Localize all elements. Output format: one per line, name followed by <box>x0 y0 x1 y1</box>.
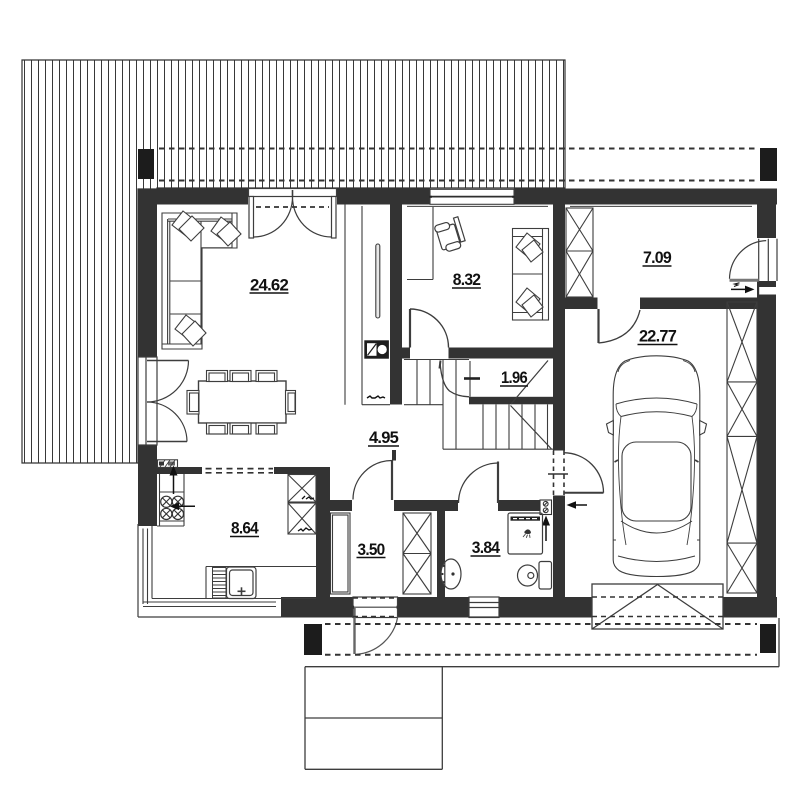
svg-text:24.62: 24.62 <box>250 276 288 295</box>
svg-text:1.96: 1.96 <box>501 368 527 387</box>
svg-text:4.95: 4.95 <box>369 428 398 447</box>
svg-text:3.84: 3.84 <box>472 538 501 557</box>
svg-text:7.09: 7.09 <box>643 248 671 267</box>
svg-text:8.64: 8.64 <box>231 519 259 538</box>
svg-text:8.32: 8.32 <box>453 270 481 289</box>
svg-text:22.77: 22.77 <box>639 327 676 346</box>
svg-text:3.50: 3.50 <box>358 540 385 559</box>
